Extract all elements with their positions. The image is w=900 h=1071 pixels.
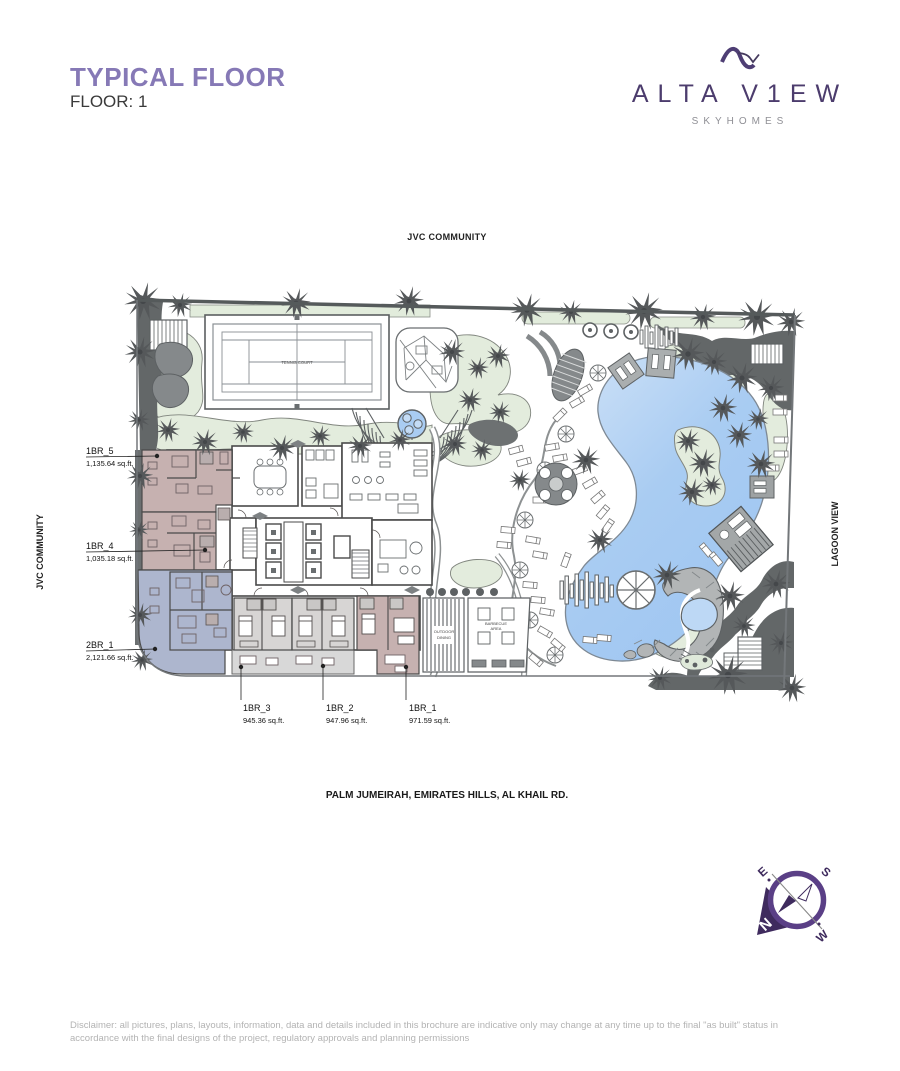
svg-text:E: E [755,864,770,880]
svg-text:947.96 sq.ft.: 947.96 sq.ft. [326,716,367,725]
svg-text:1,135.64 sq.ft.: 1,135.64 sq.ft. [86,459,134,468]
svg-text:TENNIS COURT: TENNIS COURT [281,360,313,365]
svg-text:S: S [818,864,833,880]
svg-text:971.59 sq.ft.: 971.59 sq.ft. [409,716,450,725]
svg-text:1BR_1: 1BR_1 [409,703,437,713]
svg-text:1BR_3: 1BR_3 [243,703,271,713]
svg-text:1BR_5: 1BR_5 [86,446,114,456]
svg-text:W: W [813,927,831,945]
svg-text:1BR_2: 1BR_2 [326,703,354,713]
svg-text:2,121.66 sq.ft.: 2,121.66 sq.ft. [86,653,134,662]
svg-text:1BR_4: 1BR_4 [86,541,114,551]
svg-text:DINING: DINING [437,635,451,640]
svg-text:OUTDOOR: OUTDOOR [434,629,455,634]
svg-text:2BR_1: 2BR_1 [86,640,114,650]
svg-text:1,035.18 sq.ft.: 1,035.18 sq.ft. [86,554,134,563]
svg-text:945.36 sq.ft.: 945.36 sq.ft. [243,716,284,725]
svg-text:AREA: AREA [491,626,502,631]
